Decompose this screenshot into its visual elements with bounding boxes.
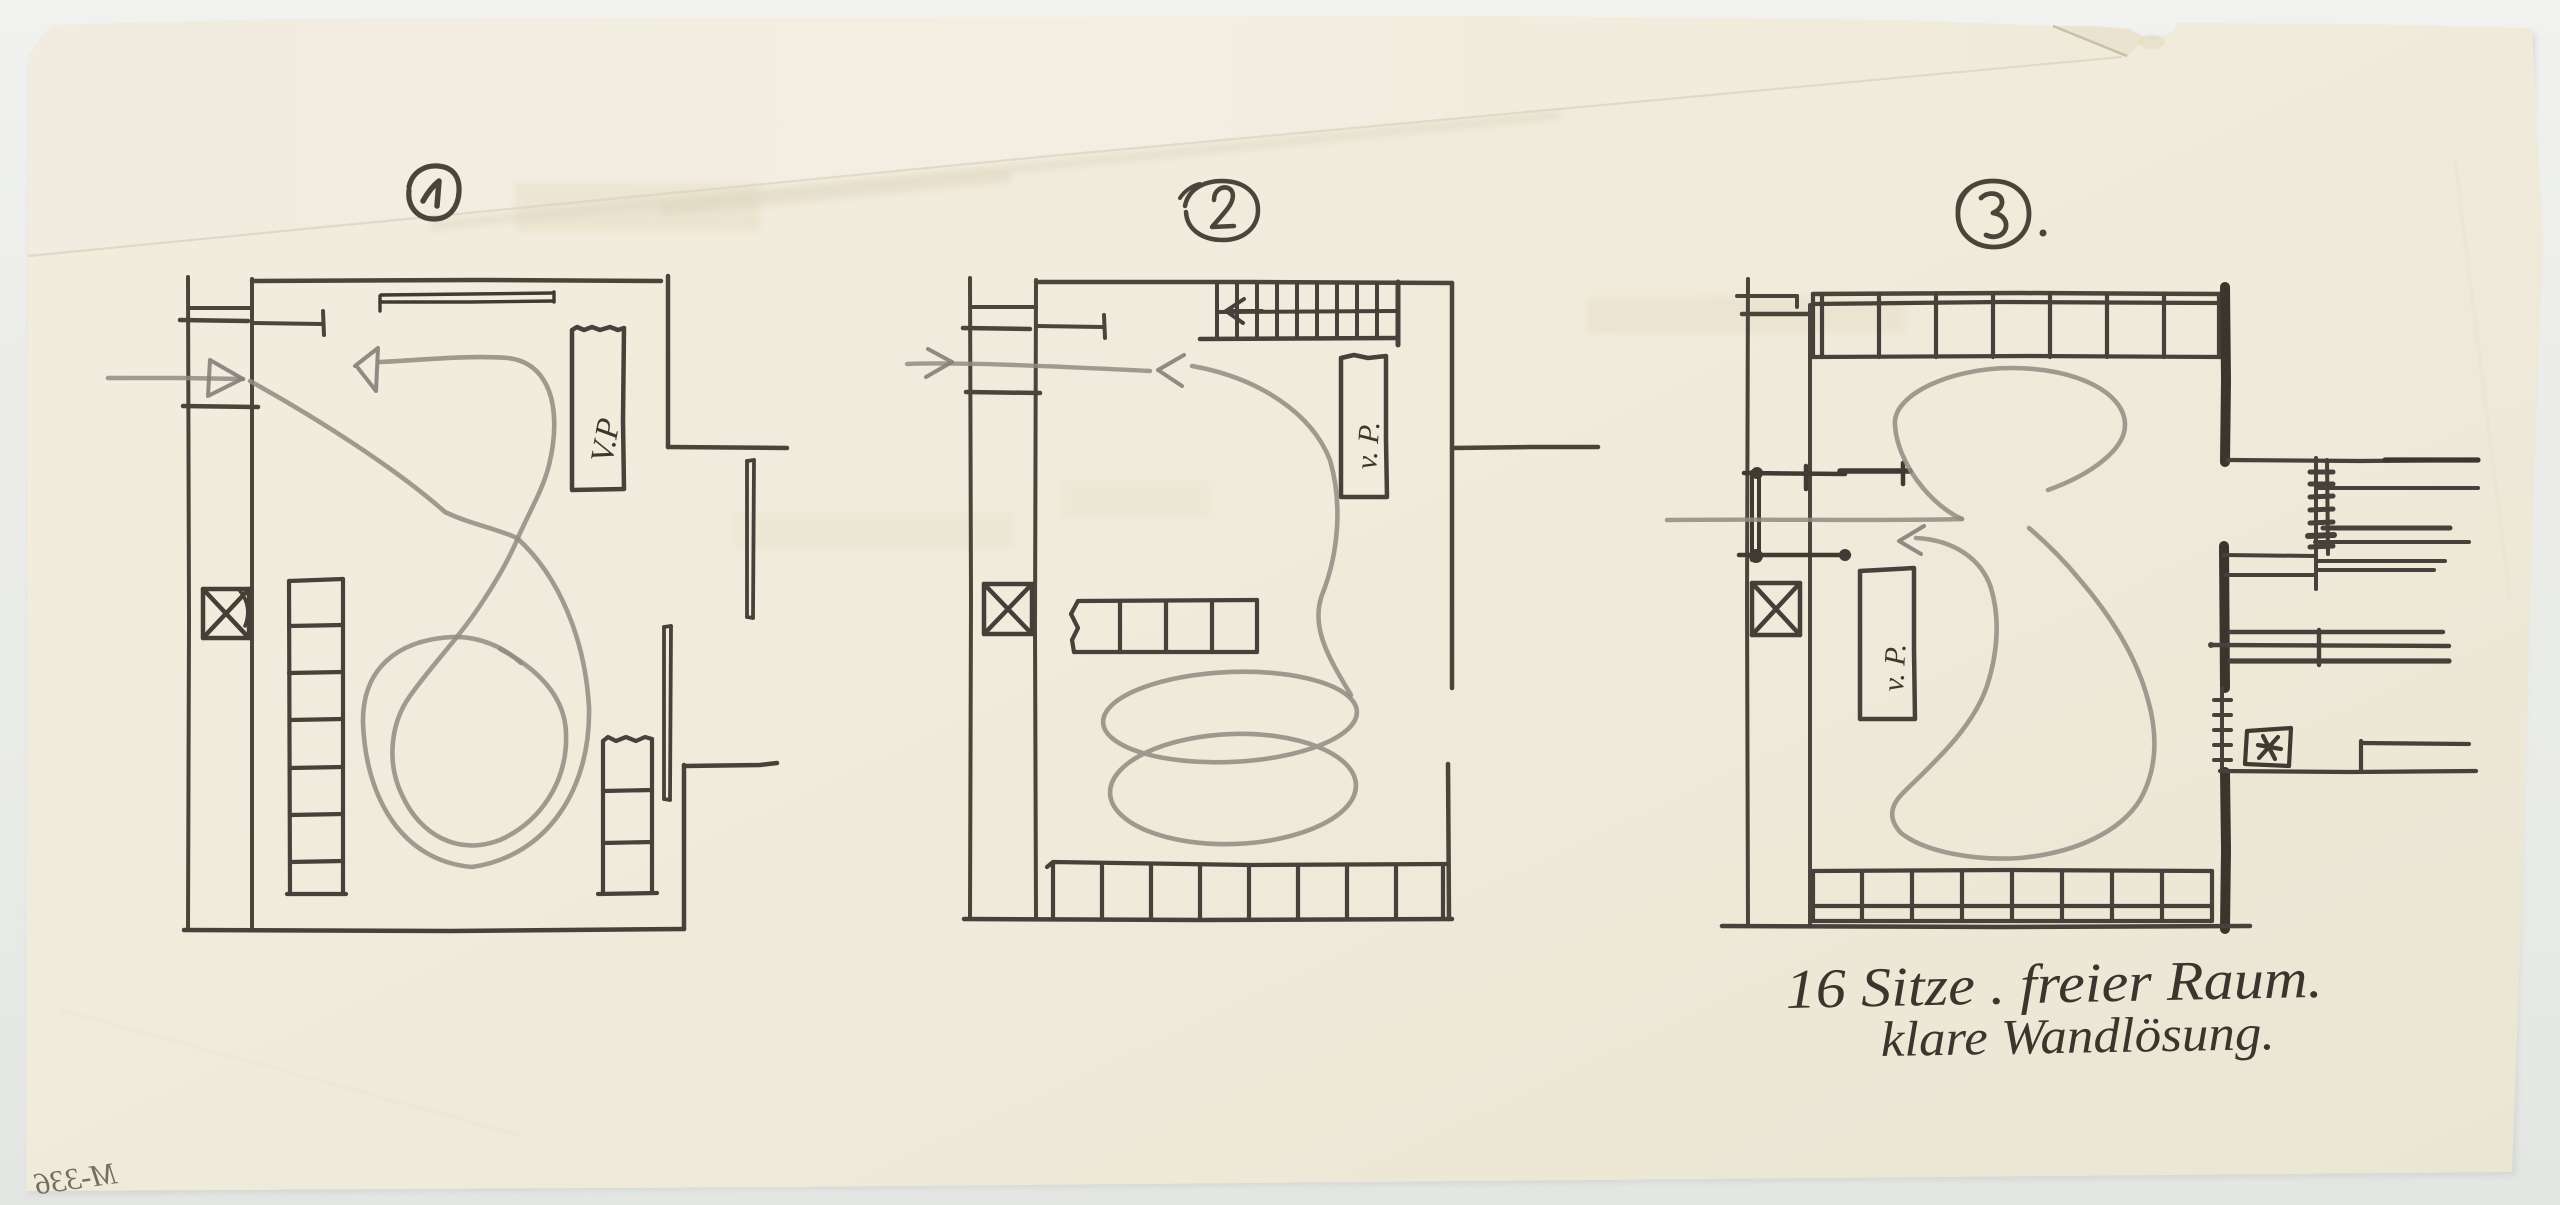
svg-text:v. P.: v. P.: [1877, 643, 1912, 693]
svg-text:V.P: V.P: [584, 415, 627, 465]
svg-text:v. P.: v. P.: [1350, 420, 1386, 470]
svg-text:klare Wandlösung.: klare Wandlösung.: [1880, 1004, 2275, 1067]
